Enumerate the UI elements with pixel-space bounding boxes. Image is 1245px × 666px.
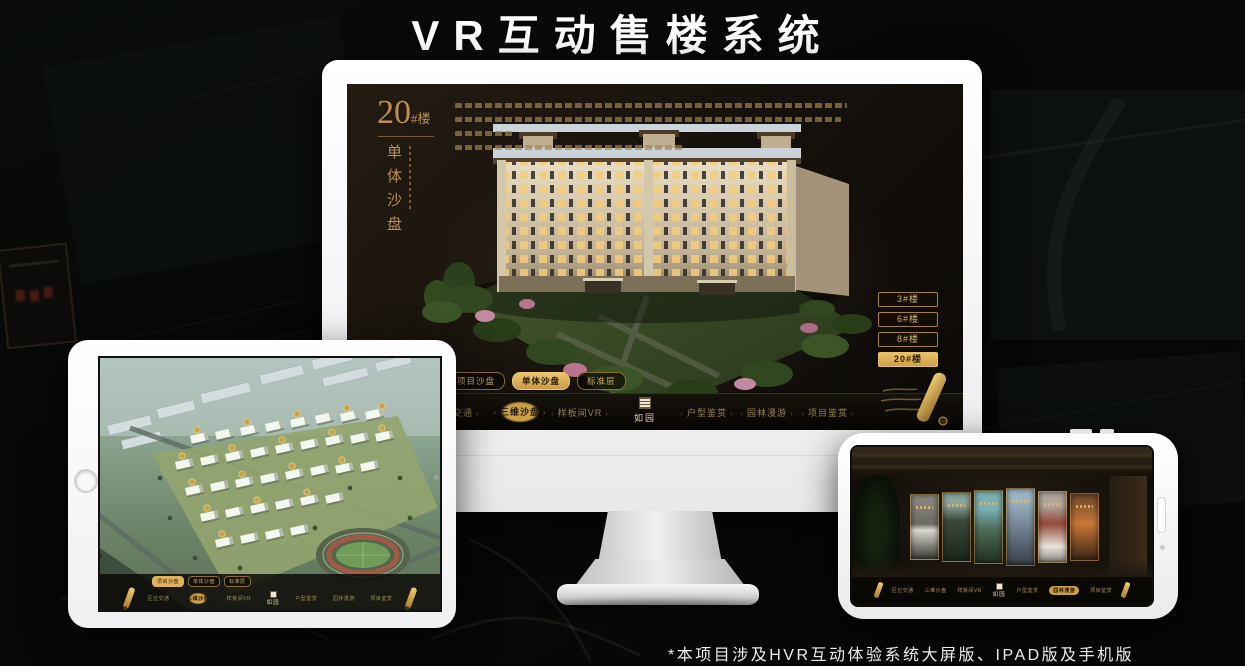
building-description (455, 103, 857, 159)
panel-interior[interactable] (1070, 493, 1099, 561)
phone-nav-item-floorplan[interactable]: 户型鉴赏 (1016, 587, 1038, 594)
nav-item-3d-sandbox[interactable]: 三维沙盘 (490, 398, 550, 426)
monitor-stand-neck (598, 511, 722, 563)
description-line (455, 117, 841, 122)
phone-nav-item-project-view[interactable]: 项目鉴赏 (1090, 587, 1112, 594)
building-title: 20#楼 (377, 96, 431, 130)
tablet-nav-item-3d-sandbox[interactable]: 三维沙盘 (185, 592, 211, 605)
aerial-masterplan-render (100, 358, 440, 610)
phone-nav-item-garden-tour[interactable]: 园林漫游 (1049, 586, 1079, 595)
tablet-nav-row: 区位交通 三维沙盘 样板间VR 如园 户型鉴赏 园林漫游 项目鉴赏 (126, 587, 414, 609)
scroll-brush-icon[interactable] (1120, 582, 1130, 599)
tablet-subtab-project-sandbox[interactable]: 项目沙盘 (152, 576, 184, 587)
monitor-stand-shadow (545, 601, 771, 611)
tablet-nav-item-floorplan[interactable]: 户型鉴赏 (295, 595, 317, 602)
tablet-screen: 项目沙盘 单体沙盘 标准层 区位交通 三维沙盘 样板间VR 如园 户型鉴赏 园林… (100, 358, 440, 610)
phone-nav-item-3d-sandbox[interactable]: 三维沙盘 (925, 587, 947, 594)
description-line (455, 145, 685, 150)
panel-building[interactable] (1006, 488, 1035, 566)
floor-button-6[interactable]: 6#楼 (878, 312, 938, 327)
tablet-home-button[interactable] (74, 469, 98, 493)
title-underline (378, 136, 434, 137)
tablet-subtab-standard-floor[interactable]: 标准层 (224, 576, 251, 587)
sandbox-subtabs: 项目沙盘 单体沙盘 标准层 (447, 372, 626, 390)
panel-garden[interactable] (942, 492, 971, 562)
background-plaque (0, 243, 77, 350)
tablet-subtab-single-sandbox[interactable]: 单体沙盘 (188, 576, 220, 587)
brand-logo: 如园 (630, 397, 660, 424)
phone-brand-logo: 如园 (993, 583, 1006, 598)
nav-item-showroom-vr[interactable]: 样板间VR (550, 406, 610, 419)
tablet-camera-icon (434, 475, 439, 480)
logo-seal-icon (639, 397, 651, 409)
nav-item-project-view[interactable]: 项目鉴赏 (798, 406, 858, 419)
page: VR互动售楼系统 (0, 0, 1245, 666)
floor-button-20[interactable]: 20#楼 (878, 352, 938, 367)
logo-seal-icon (996, 583, 1003, 590)
building-subtitle: 单体沙盘 (383, 144, 404, 240)
tablet-brand-logo: 如园 (267, 591, 280, 606)
panel-courtyard[interactable] (910, 494, 939, 560)
description-line (455, 103, 847, 108)
panel-autumn-trees[interactable] (1038, 491, 1067, 563)
logo-text: 如园 (993, 590, 1006, 598)
subtab-standard-floor[interactable]: 标准层 (577, 372, 626, 390)
tablet-bottom-nav: 项目沙盘 单体沙盘 标准层 区位交通 三维沙盘 样板间VR 如园 户型鉴赏 园林… (100, 574, 440, 610)
phone-power-button[interactable] (1100, 429, 1114, 434)
scroll-brush-icon[interactable] (122, 587, 135, 610)
floor-button-3[interactable]: 3#楼 (878, 292, 938, 307)
monitor-stand-flare (575, 559, 745, 586)
logo-text: 如园 (267, 598, 280, 606)
tablet-nav-item-location[interactable]: 区位交通 (148, 595, 170, 602)
nav-item-garden-tour[interactable]: 园林漫游 (737, 406, 797, 419)
subtab-single-sandbox[interactable]: 单体沙盘 (512, 372, 570, 390)
page-title: VR互动售楼系统 (0, 2, 1245, 63)
tablet-nav-item-garden-tour[interactable]: 园林漫游 (333, 595, 355, 602)
phone-ceiling (852, 447, 1152, 481)
phone-screen: 区位交通 三维沙盘 样板间VR 如园 户型鉴赏 园林漫游 项目鉴赏 (852, 447, 1152, 605)
nav-item-floorplan[interactable]: 户型鉴赏 (677, 406, 737, 419)
building-number-suffix: #楼 (411, 111, 431, 126)
subtitle-caption-marks (409, 146, 411, 212)
phone-camera-icon (1160, 545, 1165, 550)
phone-nav-item-showroom-vr[interactable]: 样板间VR (957, 587, 981, 594)
phone-volume-button[interactable] (1070, 429, 1092, 434)
description-line (455, 131, 515, 136)
tablet-subtabs: 项目沙盘 单体沙盘 标准层 (152, 576, 251, 587)
phone-scene-panels (910, 485, 1090, 569)
scroll-brush-icon[interactable] (404, 587, 417, 610)
scroll-brush-icon[interactable] (873, 582, 883, 599)
building-number: 20 (377, 94, 411, 131)
phone-nav-row: 区位交通 三维沙盘 样板间VR 如园 户型鉴赏 园林漫游 项目鉴赏 (876, 581, 1128, 599)
logo-text: 如园 (630, 411, 660, 424)
phone-bottom-nav: 区位交通 三维沙盘 样板间VR 如园 户型鉴赏 园林漫游 项目鉴赏 (852, 577, 1152, 603)
phone-nav-item-location[interactable]: 区位交通 (892, 587, 914, 594)
tablet-nav-item-project-view[interactable]: 项目鉴赏 (370, 595, 392, 602)
floor-button-8[interactable]: 8#楼 (878, 332, 938, 347)
floor-selector: 3#楼 6#楼 8#楼 20#楼 (878, 292, 938, 372)
panel-landscape[interactable] (974, 490, 1003, 564)
scroll-brush-icon[interactable] (877, 369, 963, 430)
phone-side-pill (1157, 497, 1166, 533)
logo-seal-icon (270, 591, 277, 598)
footer-note: *本项目涉及HVR互动体验系统大屏版、IPAD版及手机版 (668, 641, 1134, 665)
tablet-nav-item-showroom-vr[interactable]: 样板间VR (227, 595, 251, 602)
